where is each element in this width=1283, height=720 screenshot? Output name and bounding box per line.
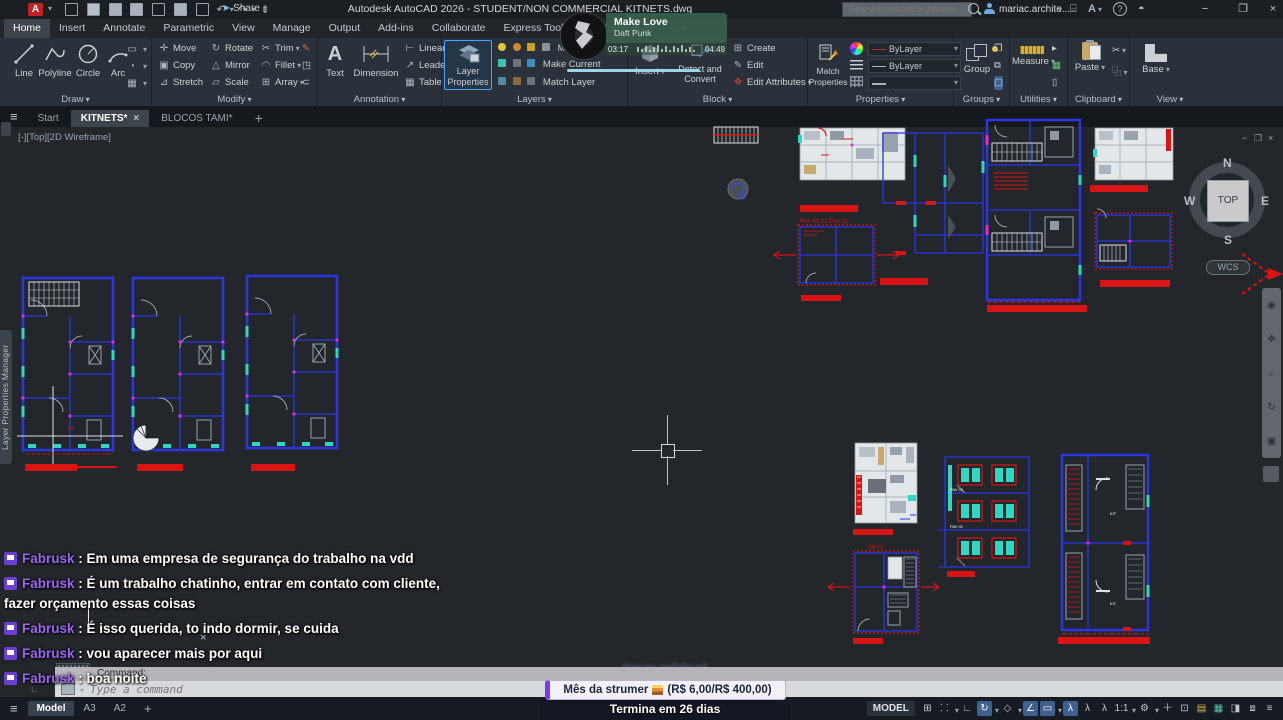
- restore-window-icon[interactable]: ❐: [1228, 0, 1258, 18]
- crosshair-h-right: [673, 450, 702, 451]
- layer-properties-palette-tab[interactable]: Layer Properties Manager: [0, 330, 12, 464]
- quick-calc-icon[interactable]: ▦: [1052, 59, 1061, 73]
- workspace-gear-icon[interactable]: ⚙: [1137, 701, 1152, 716]
- chat-message: Fabrusk : boa noite: [4, 669, 604, 689]
- viewcube-east[interactable]: E: [1261, 194, 1269, 208]
- group-edit-icon[interactable]: ⧉: [994, 59, 1001, 73]
- scale-caret-icon[interactable]: [1130, 700, 1136, 718]
- autocad-logo-icon[interactable]: A: [28, 3, 43, 16]
- floor-plans-left-cluster[interactable]: 1.4: [15, 268, 345, 480]
- array-button[interactable]: ⊞Array: [260, 76, 304, 90]
- twitch-badge-icon: [4, 577, 17, 590]
- chat-username: Fabrusk: [22, 551, 75, 566]
- id-point-icon[interactable]: ▯: [1052, 76, 1057, 90]
- copy-icon: ▣: [158, 59, 170, 73]
- panel-layers-label[interactable]: Layers: [442, 94, 627, 105]
- viewport-minimize-icon[interactable]: −: [1242, 133, 1247, 143]
- user-avatar-icon[interactable]: [984, 3, 995, 14]
- chat-username: Fabrusk: [22, 621, 75, 636]
- save-icon[interactable]: [109, 3, 122, 16]
- viewcube-north[interactable]: N: [1223, 156, 1232, 170]
- scale-icon: ▱: [210, 76, 222, 90]
- match-properties-button[interactable]: Match Properties: [808, 42, 848, 88]
- lineweight-display-icon[interactable]: λ: [1063, 701, 1078, 716]
- seek-bar: [567, 69, 700, 72]
- paste-clipboard-icon: [1082, 42, 1098, 60]
- clean-screen-icon[interactable]: ◨: [1228, 701, 1243, 716]
- crosshair-v-bottom: [667, 456, 668, 485]
- navigation-bar[interactable]: ◉ ✥ ⌕ ↻ ▣: [1262, 288, 1281, 458]
- panel-utilities: Measure ▸ ▦ ▯ Utilities: [1010, 38, 1068, 106]
- search-icon[interactable]: [968, 3, 979, 14]
- search-input[interactable]: [842, 2, 972, 17]
- ellipse-tool-icon[interactable]: ◔: [126, 60, 147, 74]
- file-tab-kitnets[interactable]: KITNETS*×: [71, 110, 150, 127]
- svg-text:PAV 01: PAV 01: [868, 545, 884, 551]
- chat-username: Fabrusk: [22, 576, 75, 591]
- layer-on-icon: [498, 43, 506, 51]
- panel-groups-label[interactable]: Groups: [954, 94, 1009, 105]
- object-snap-tracking-icon[interactable]: ∠: [1023, 701, 1038, 716]
- tab-annotate[interactable]: Annotate: [94, 19, 154, 38]
- quick-select-icon[interactable]: ▸: [1052, 42, 1057, 56]
- chat-message: Fabrusk : É isso querida, to indo dormir…: [4, 619, 604, 639]
- base-icon: [1145, 44, 1167, 62]
- copy-button[interactable]: ▣Copy: [158, 59, 195, 73]
- rectangle-tool-icon[interactable]: ▭: [126, 43, 147, 57]
- layer-plot-icon: [542, 43, 550, 51]
- elapsed-time: 03:17: [608, 45, 628, 54]
- osnap-caret-icon[interactable]: [1056, 700, 1062, 718]
- edit-block-button[interactable]: ✎Edit: [732, 59, 763, 73]
- create-block-icon: ⊞: [732, 42, 744, 56]
- panel-block-label[interactable]: Block: [628, 94, 807, 105]
- edit-attributes-icon: ❖: [732, 76, 744, 90]
- offset-icon[interactable]: ⊂: [302, 76, 310, 90]
- dimension-icon: [361, 42, 391, 66]
- chat-username: Fabrusk: [22, 646, 75, 661]
- floor-plans-bottom-right-cluster[interactable]: PAV 01 PAV 03PAV 02: [820, 435, 1170, 670]
- sheet-set-icon[interactable]: [174, 3, 187, 16]
- erase-icon[interactable]: ✎: [302, 42, 310, 56]
- svg-text:KIT: KIT: [1110, 601, 1117, 606]
- linear-icon: ⊢: [404, 42, 416, 56]
- layer-freeze-icon: [513, 43, 521, 51]
- layer-match-icon: [498, 77, 506, 85]
- create-block-button[interactable]: ⊞Create: [732, 42, 776, 56]
- crosshair-v-top: [667, 415, 668, 444]
- layout-menu-icon[interactable]: ≡: [0, 698, 28, 719]
- plot-icon[interactable]: [152, 3, 165, 16]
- help-icon[interactable]: ?: [1113, 2, 1127, 16]
- panel-clipboard: Paste ✂ ⿻ Clipboard: [1068, 38, 1130, 106]
- layer-lock-icon: [527, 43, 535, 51]
- close-window-icon[interactable]: ×: [1258, 0, 1283, 18]
- iso-caret-icon[interactable]: [1016, 700, 1022, 718]
- linetype-bylayer-select[interactable]: ByLayer: [868, 59, 961, 73]
- equalizer-icon: [636, 44, 698, 54]
- twitch-badge-icon: [4, 552, 17, 565]
- isometric-drafting-icon[interactable]: ◇: [1000, 701, 1015, 716]
- polyline-icon: [43, 42, 67, 66]
- panel-view: Base View: [1130, 38, 1283, 106]
- file-tab-start[interactable]: Start: [28, 110, 69, 127]
- chat-text: Em uma empresa de segurança do trabalho …: [87, 551, 414, 566]
- account-caret-icon[interactable]: [1056, 4, 1062, 15]
- viewport-restore-icon[interactable]: ❐: [1254, 133, 1262, 144]
- base-button[interactable]: Base: [1138, 42, 1174, 75]
- tab-home[interactable]: Home: [4, 19, 50, 38]
- goal-progress-bar: Mês da strumer (R$ 6,00/R$ 400,00): [545, 680, 786, 700]
- viewport-controls[interactable]: [-][Top][2D Wireframe]: [18, 132, 111, 143]
- minimize-window-icon[interactable]: −: [1190, 0, 1220, 18]
- polar-caret-icon[interactable]: [993, 700, 999, 718]
- move-button[interactable]: ✛Move: [158, 42, 196, 56]
- copy-clip-icon[interactable]: ⿻: [1112, 66, 1128, 80]
- zoom-icon[interactable]: ⌕: [1269, 368, 1275, 379]
- twitch-badge-icon: [4, 647, 17, 660]
- chat-message: Fabrusk : É um trabalho chatinho, entrar…: [4, 574, 466, 614]
- now-playing-panel: Make Love Daft Punk: [606, 13, 727, 43]
- goal-footer: Termina em 26 dias: [540, 702, 790, 716]
- chat-text: vou aparecer mais por aqui: [87, 646, 263, 661]
- close-tab-icon[interactable]: ×: [133, 113, 139, 124]
- snap-caret-icon[interactable]: [953, 700, 959, 718]
- fillet-button[interactable]: ◠Fillet: [260, 59, 301, 73]
- rotate-icon: ↻: [210, 42, 222, 56]
- pan-icon[interactable]: ✥: [1267, 334, 1275, 345]
- match-properties-icon: [817, 42, 839, 64]
- chat-text: boa noite: [87, 671, 147, 686]
- floor-plans-top-right-cluster[interactable]: Res Kit 01 Pav 02: [700, 115, 1195, 313]
- layout-tab-a3[interactable]: A3: [74, 701, 104, 716]
- print-icon[interactable]: [196, 3, 209, 16]
- viewport-close-icon[interactable]: ×: [1268, 133, 1273, 143]
- album-art: [560, 12, 608, 60]
- app-store-cart-icon[interactable]: ⌸: [1070, 3, 1077, 16]
- panel-view-label[interactable]: View: [1130, 94, 1210, 105]
- rotate-button[interactable]: ↻Rotate: [210, 42, 253, 56]
- app-menu-caret-icon[interactable]: [46, 3, 52, 14]
- song-artist: Daft Punk: [614, 28, 719, 38]
- stretch-icon: ⊿: [158, 76, 170, 90]
- tab-output[interactable]: Output: [320, 19, 370, 38]
- table-icon: ▦: [404, 76, 416, 90]
- hatch-tool-icon[interactable]: ▦: [126, 77, 147, 91]
- trim-icon: ✂: [260, 42, 272, 56]
- svg-text:Res Kit 01 Pav 02: Res Kit 01 Pav 02: [800, 219, 849, 225]
- cut-icon[interactable]: ✂: [1112, 44, 1126, 58]
- song-title: Make Love: [614, 16, 719, 28]
- stretch-button[interactable]: ⊿Stretch: [158, 76, 203, 90]
- goal-title: Mês da strumer: [563, 684, 648, 696]
- feedback-bubble-icon[interactable]: ◓: [1138, 3, 1145, 15]
- show-motion-icon[interactable]: ▣: [1267, 436, 1276, 447]
- crosshair-pickbox: [661, 444, 675, 458]
- model-space-badge[interactable]: MODEL: [867, 701, 915, 716]
- move-icon: ✛: [158, 42, 170, 56]
- paste-button[interactable]: Paste: [1072, 42, 1108, 73]
- ungroup-icon[interactable]: ❒: [994, 42, 1003, 56]
- file-tab-blocos[interactable]: BLOCOS TAMI*: [151, 110, 242, 127]
- measure-button[interactable]: Measure: [1012, 42, 1052, 67]
- units-icon[interactable]: ⊡: [1177, 701, 1192, 716]
- viewcube-south[interactable]: S: [1224, 233, 1232, 247]
- group-select-icon[interactable]: ▢: [994, 76, 1003, 90]
- match-layer-button[interactable]: Match Layer: [496, 76, 595, 90]
- model-tab[interactable]: Model: [28, 701, 75, 716]
- goal-watermark: doacao.gg/fabrusk: [540, 661, 790, 673]
- panel-annotation: A Text Dimension ⊢Linear ↗Leader ▦Table …: [318, 38, 442, 106]
- nav-wheel-icon[interactable]: ◉: [1267, 300, 1276, 311]
- tab-view[interactable]: View: [223, 19, 264, 38]
- annotation-visibility-icon[interactable]: ＋: [1160, 701, 1175, 716]
- new-file-icon[interactable]: [65, 3, 78, 16]
- mirror-button[interactable]: △Mirror: [210, 59, 250, 73]
- explode-icon[interactable]: ◳: [302, 59, 311, 73]
- panel-groups: Group ❒ ⧉ ▢ Groups: [954, 38, 1010, 106]
- customization-icon[interactable]: ≡: [1262, 701, 1277, 716]
- text-icon: A: [320, 42, 350, 66]
- viewcube-top-face[interactable]: TOP: [1207, 180, 1249, 222]
- measure-ruler-icon: [1020, 46, 1044, 54]
- transparency-icon[interactable]: [850, 76, 863, 87]
- cake-icon: [652, 685, 663, 695]
- chat-text: É isso querida, to indo dormir, se cuida: [87, 621, 339, 636]
- grid-display-icon[interactable]: ⊞: [920, 701, 935, 716]
- dimension-button[interactable]: Dimension: [350, 42, 402, 79]
- layout-tab-a2[interactable]: A2: [105, 701, 135, 716]
- new-layout-icon[interactable]: +: [135, 699, 161, 718]
- lineweight-select[interactable]: [868, 76, 961, 90]
- polar-tracking-icon[interactable]: ↻: [977, 701, 992, 716]
- a-caret-icon[interactable]: [1096, 4, 1102, 15]
- save-as-icon[interactable]: [130, 3, 143, 16]
- layer-properties-icon: [455, 42, 481, 64]
- duration-time: 04:49: [705, 45, 725, 54]
- trim-button[interactable]: ✂Trim: [260, 42, 300, 56]
- color-bylayer-select[interactable]: ByLayer: [868, 42, 961, 56]
- transparency-display-icon[interactable]: λ: [1080, 701, 1095, 716]
- panel-annotation-label[interactable]: Annotation: [318, 94, 441, 105]
- panel-draw-label[interactable]: Draw: [0, 94, 151, 105]
- leader-icon: ↗: [404, 59, 416, 73]
- ortho-mode-icon[interactable]: ∟: [960, 701, 975, 716]
- array-icon: ⊞: [260, 76, 272, 90]
- tab-parametric[interactable]: Parametric: [154, 19, 223, 38]
- panel-modify: ✛Move ▣Copy ⊿Stretch ↻Rotate △Mirror ▱Sc…: [152, 38, 318, 106]
- panel-modify-label[interactable]: Modify: [152, 94, 317, 105]
- panel-properties-label[interactable]: Properties: [808, 94, 953, 105]
- goal-amount: (R$ 6,00/R$ 400,00): [667, 684, 771, 696]
- viewcube-west[interactable]: W: [1184, 194, 1195, 208]
- palette-autohide-icon[interactable]: [1, 122, 11, 136]
- scale-button[interactable]: ▱Scale: [210, 76, 249, 90]
- object-snap-icon[interactable]: ▭: [1040, 701, 1055, 716]
- autodesk-a-icon[interactable]: A: [1088, 3, 1096, 15]
- crosshair-h-left: [632, 450, 661, 451]
- open-file-icon[interactable]: [87, 3, 100, 16]
- isolate-objects-icon[interactable]: ▦: [1211, 701, 1226, 716]
- lineweight-icon[interactable]: [850, 60, 863, 71]
- wcs-menu[interactable]: WCS: [1206, 260, 1250, 275]
- edit-attributes-button[interactable]: ❖Edit Attributes: [732, 76, 812, 90]
- text-button[interactable]: A Text: [320, 42, 350, 79]
- layer-properties-button[interactable]: Layer Properties: [444, 40, 492, 90]
- table-button[interactable]: ▦Table: [404, 76, 442, 90]
- svg-text:PAV 02: PAV 02: [950, 524, 964, 529]
- fullscreen-icon[interactable]: ⧈: [1245, 701, 1260, 716]
- fillet-icon: ◠: [260, 59, 272, 73]
- music-progress-row: 03:17 04:49: [606, 43, 727, 55]
- svg-text:KIT: KIT: [1110, 511, 1117, 516]
- twitch-badge-icon: [4, 622, 17, 635]
- selection-cycling-icon[interactable]: λ: [1097, 701, 1112, 716]
- snap-mode-icon[interactable]: ⸬: [937, 701, 952, 716]
- tab-insert[interactable]: Insert: [50, 19, 94, 38]
- chat-message: Fabrusk : vou aparecer mais por aqui: [4, 644, 604, 664]
- tab-manage[interactable]: Manage: [264, 19, 320, 38]
- color-wheel-icon[interactable]: [850, 42, 863, 55]
- chat-message: Fabrusk : Em uma empresa de segurança do…: [4, 549, 604, 569]
- nav-extra-icon[interactable]: [1263, 466, 1279, 482]
- mirror-icon: △: [210, 59, 222, 73]
- orbit-icon[interactable]: ↻: [1267, 402, 1275, 413]
- layer-cube-icon: [498, 59, 506, 67]
- panel-utilities-label[interactable]: Utilities: [1010, 94, 1067, 105]
- twitch-badge-icon: [4, 672, 17, 685]
- svg-text:1.4: 1.4: [67, 426, 74, 432]
- group-button[interactable]: Group: [958, 42, 996, 75]
- panel-clipboard-label[interactable]: Clipboard: [1068, 94, 1129, 105]
- graphics-performance-icon[interactable]: ▤: [1194, 701, 1209, 716]
- tab-collaborate[interactable]: Collaborate: [423, 19, 495, 38]
- panel-properties: Match Properties ByLayer ByLayer Propert…: [808, 38, 954, 106]
- edit-block-icon: ✎: [732, 59, 744, 73]
- chat-username: Fabrusk: [22, 671, 75, 686]
- new-tab-icon[interactable]: +: [245, 110, 273, 127]
- workspace-caret-icon[interactable]: [1153, 700, 1159, 718]
- annotation-scale-value[interactable]: 1:1: [1114, 701, 1129, 716]
- tab-add-ins[interactable]: Add-ins: [369, 19, 423, 38]
- panel-draw: Line Polyline Circle Arc ▭ ◔ ▦ Draw: [0, 38, 152, 106]
- group-icon: [966, 44, 988, 62]
- svg-text:PAV 03: PAV 03: [950, 487, 964, 492]
